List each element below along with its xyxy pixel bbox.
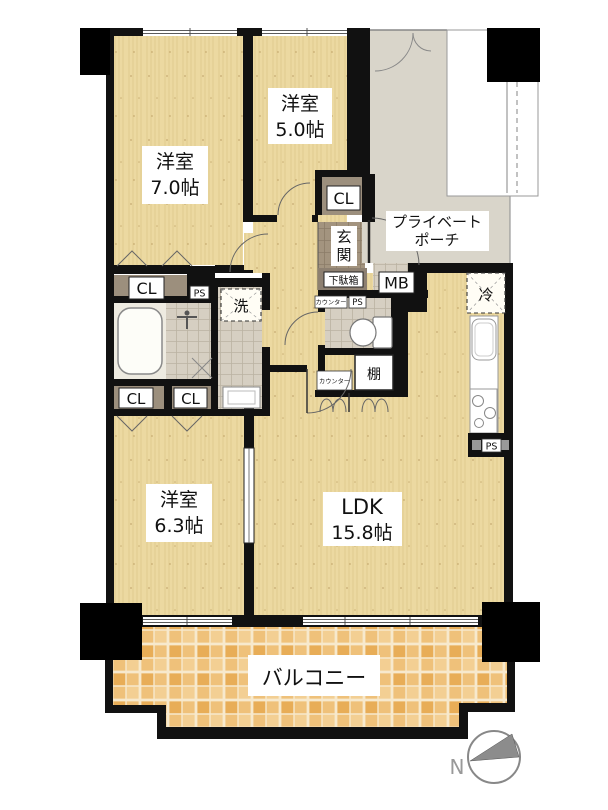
window-ldk-balcony bbox=[303, 617, 478, 625]
vanity-sink bbox=[223, 387, 260, 408]
shelf-label: 棚 bbox=[367, 367, 381, 383]
porch-label-line2: ポーチ bbox=[414, 231, 459, 249]
pillar-bottom-left bbox=[80, 603, 142, 660]
ldk-size: 15.8帖 bbox=[331, 522, 392, 544]
bedroom-5-name: 洋室 bbox=[281, 93, 319, 115]
entrance-label-char2: 関 bbox=[336, 246, 351, 264]
fridge-label: 冷 bbox=[478, 286, 493, 304]
ldk-floor-strip bbox=[253, 412, 270, 618]
bedroom-63-size: 6.3帖 bbox=[154, 515, 203, 537]
closet-5room-label: CL bbox=[333, 189, 353, 208]
entrance-label-char1: 玄 bbox=[336, 228, 351, 246]
bedroom-5-size: 5.0帖 bbox=[275, 119, 324, 141]
sliding-partition bbox=[244, 448, 254, 543]
shoe-cabinet-label: 下駄箱 bbox=[329, 274, 359, 287]
ps-kitchen-label: PS bbox=[486, 442, 498, 453]
closet-low-left-label: CL bbox=[127, 390, 146, 408]
balcony-label: バルコニー bbox=[262, 666, 367, 690]
ps-hall-label: PS bbox=[194, 289, 206, 300]
hall-floor bbox=[253, 222, 318, 273]
floor-plan-page: 洋室 7.0帖 洋室 5.0帖 洋室 6.3帖 LDK 15.8帖 バルコニー … bbox=[0, 0, 608, 810]
kitchen-counter bbox=[470, 316, 498, 437]
stove bbox=[470, 389, 497, 433]
bedroom-7-name: 洋室 bbox=[156, 151, 194, 173]
ps-toilet-label: PS bbox=[352, 298, 363, 308]
window-bedroom63-balcony bbox=[143, 617, 232, 625]
bedroom-7-size: 7.0帖 bbox=[150, 177, 199, 199]
closet-hall-label: CL bbox=[136, 279, 156, 298]
bathtub bbox=[118, 308, 162, 374]
counter-toilet-label: カウンター bbox=[316, 299, 347, 307]
closet-low-right-label: CL bbox=[181, 390, 200, 408]
bedroom-63-name: 洋室 bbox=[160, 489, 198, 511]
pillar-top-right bbox=[487, 28, 540, 82]
counter-ldk-label: カウンター bbox=[319, 378, 350, 386]
pillar-bottom-right bbox=[482, 602, 540, 662]
porch-label-line1: プライベート bbox=[392, 213, 482, 231]
window-bedroom5 bbox=[262, 28, 347, 36]
meter-box-label: MB bbox=[384, 274, 409, 293]
pillar-top-left bbox=[80, 28, 110, 75]
laundry-label: 洗 bbox=[233, 297, 248, 315]
ldk-name: LDK bbox=[341, 495, 384, 519]
floor-plan-drawing: 洋室 7.0帖 洋室 5.0帖 洋室 6.3帖 LDK 15.8帖 バルコニー … bbox=[0, 0, 608, 810]
toilet bbox=[350, 317, 392, 348]
window-bedroom7 bbox=[143, 28, 237, 36]
compass-north-label: N bbox=[450, 755, 465, 779]
